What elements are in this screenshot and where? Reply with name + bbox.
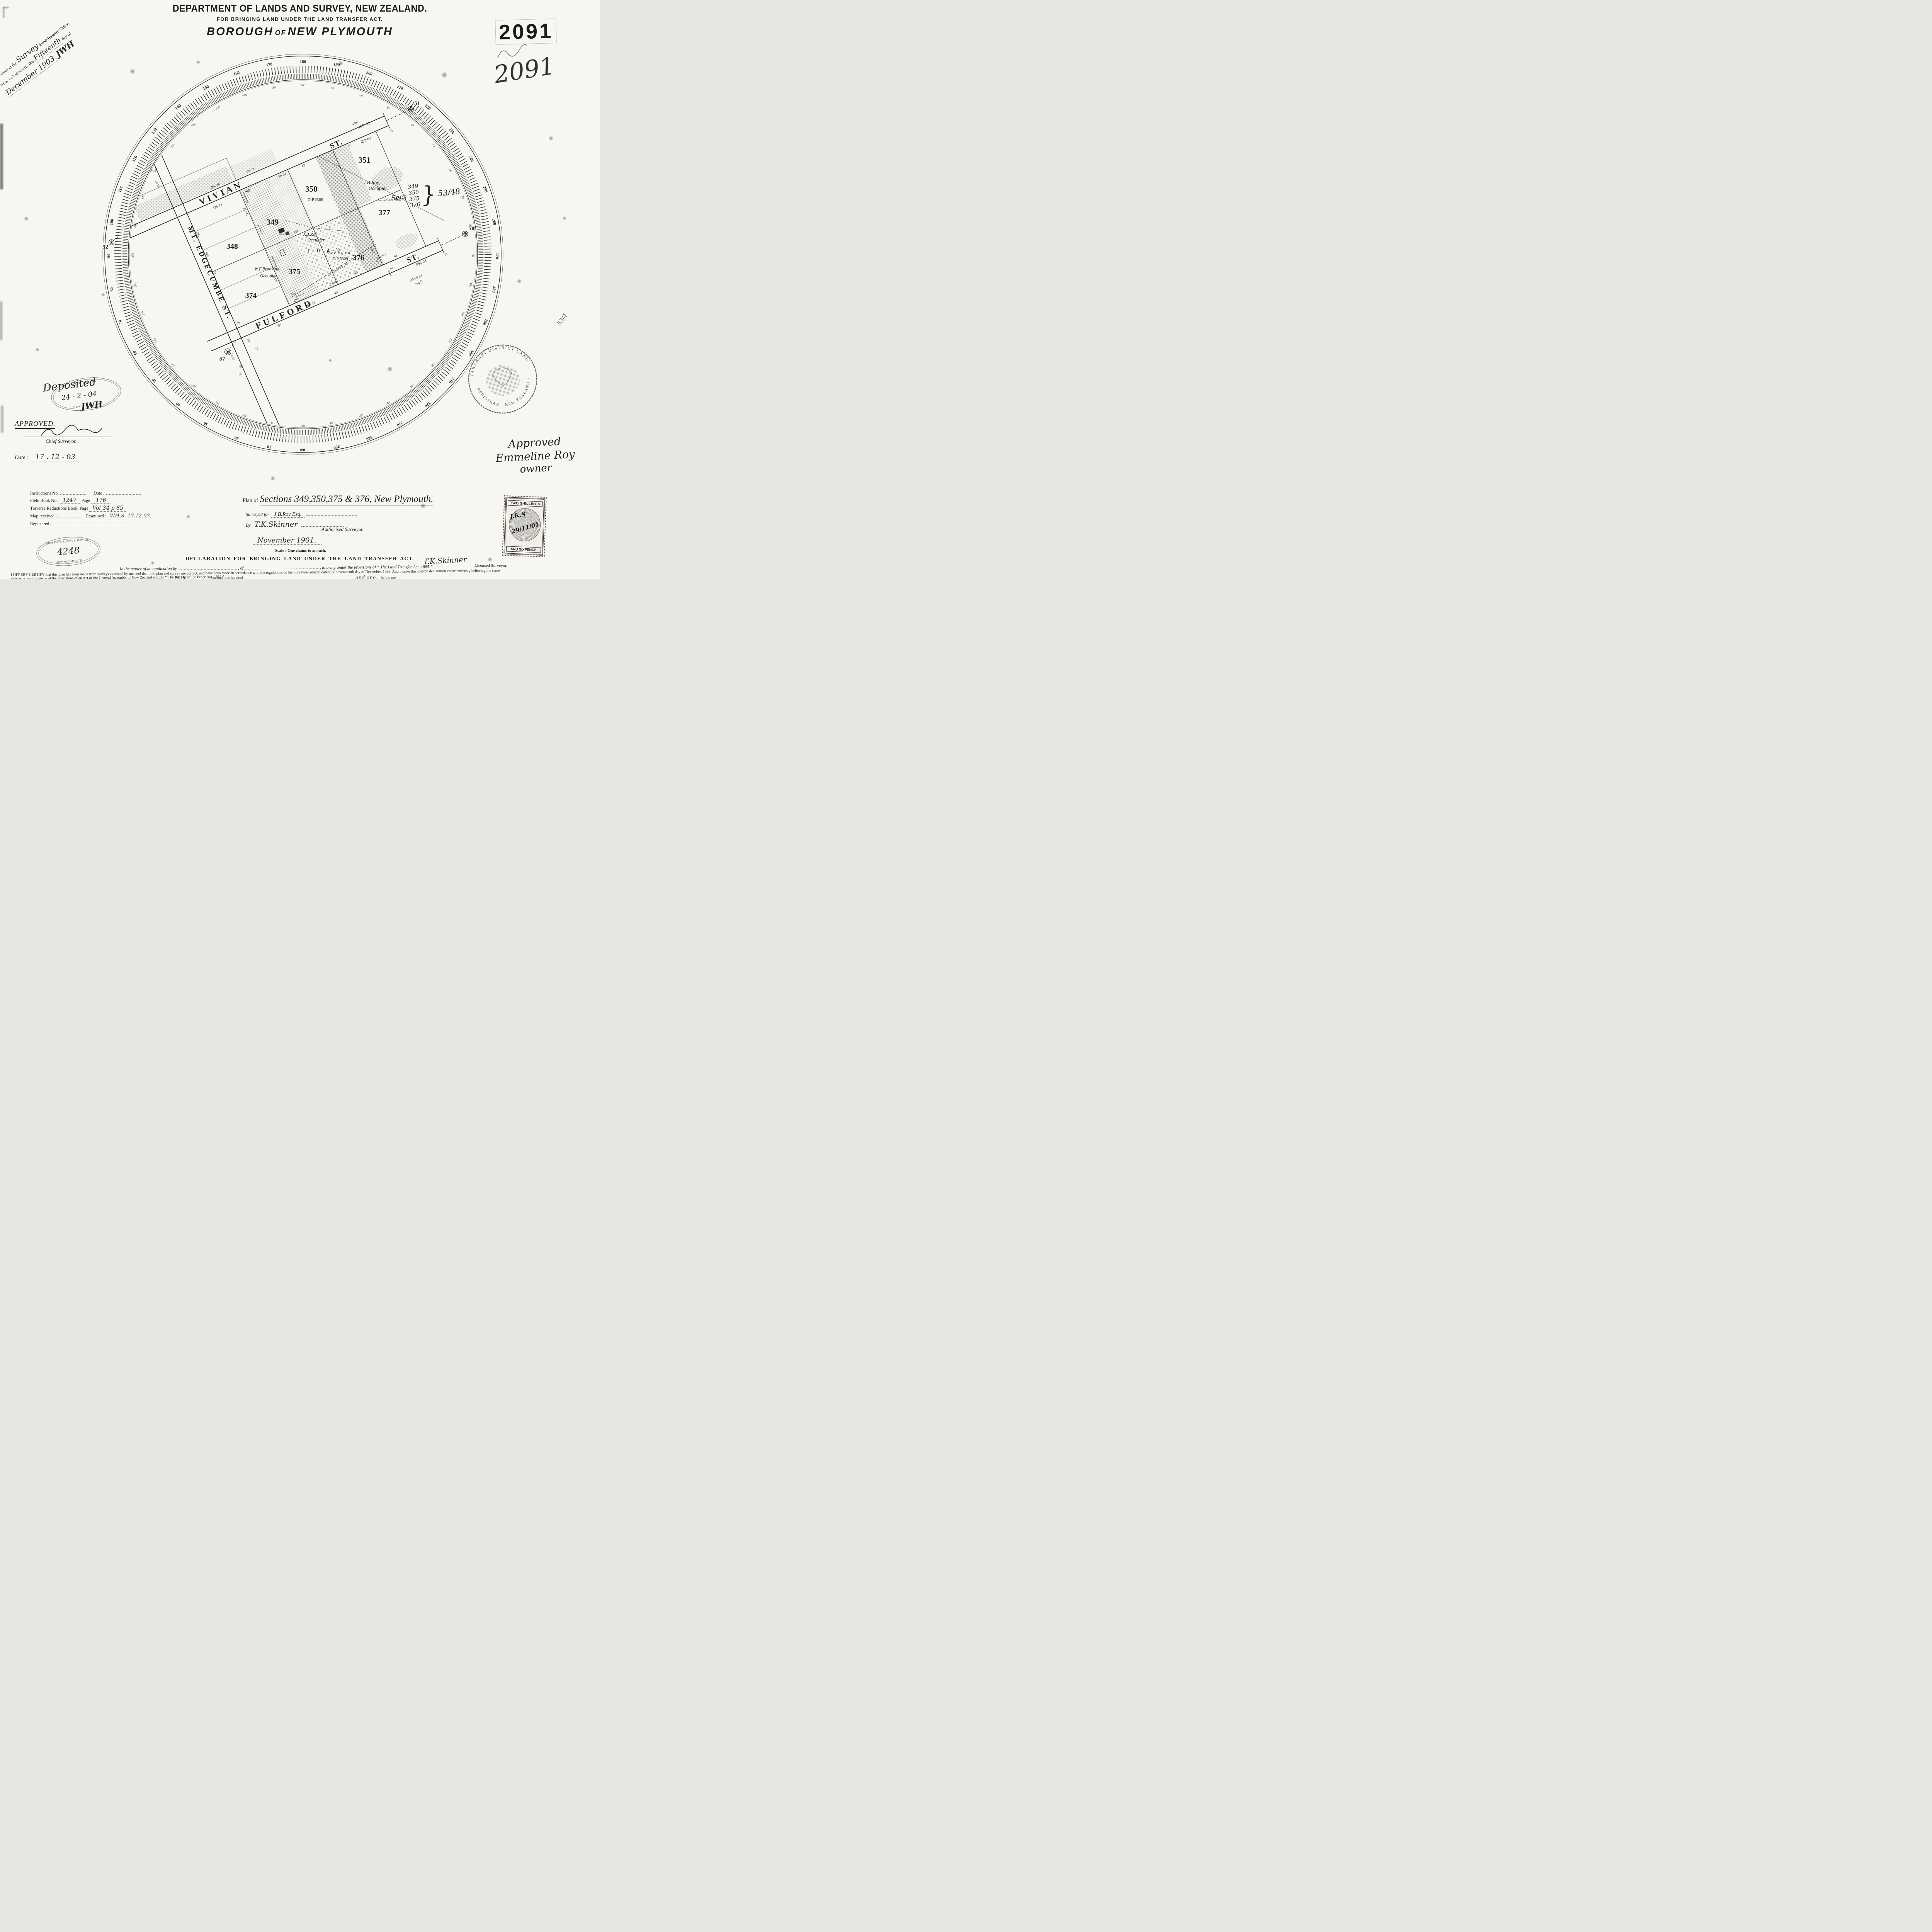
date-label: Date : — [15, 455, 28, 461]
protractor-degree-label: 100 — [109, 218, 115, 226]
inmatter-b: , of — [238, 566, 243, 571]
declaration-signature: T.K.Skinner — [423, 555, 467, 566]
scan-smudge — [228, 149, 277, 180]
deposited-initials: JWH — [80, 399, 103, 412]
occupier-label: Occupier. — [369, 185, 388, 191]
survey-mark-52 — [108, 239, 115, 246]
protractor-degree-label: 260 — [491, 219, 497, 226]
deposited-plan-ref: D.P.6309 — [332, 257, 348, 261]
mark-number-51: 51 — [414, 100, 420, 107]
measurement: 68° — [276, 323, 282, 328]
protractor-degree-label: 130 — [151, 127, 158, 135]
protractor-degree-label: 190 — [271, 421, 276, 425]
protractor-degree-label: 90 — [107, 253, 111, 258]
protractor-degree-label: 220 — [190, 383, 196, 389]
secs-label: Secs — [391, 193, 407, 202]
declaration-frag: before me — [381, 576, 396, 579]
protractor-degree-label: 310 — [170, 143, 175, 149]
protractor-degree-label: 10 — [267, 444, 272, 449]
plan-title: Plan of Sections 349,350,375 & 376, New … — [243, 494, 433, 505]
occupier-name: J.B.Roy, — [364, 179, 380, 185]
surveyed-for-label: Surveyed for — [246, 512, 269, 517]
protractor-degree-label: 230 — [170, 362, 175, 367]
declaration-frag: thousand nine hundred — [209, 576, 243, 579]
paper-speck — [549, 136, 553, 141]
measurement: 25 — [389, 129, 393, 133]
protractor-degree-label: 70 — [118, 319, 124, 325]
paper-speck — [563, 216, 566, 220]
protractor-degree-label: 170 — [266, 62, 273, 68]
page-value: 176 — [91, 497, 111, 504]
protractor-degree-label: 50 — [431, 144, 435, 148]
approval-date-row: Date : 17 . 12 - 03 — [15, 453, 81, 461]
revenue-stamp-bottom: AND SIXPENCE — [506, 546, 541, 553]
survey-mark-58 — [462, 230, 469, 237]
plan-date-value: November 1901. — [252, 536, 322, 545]
measurement: 65 — [393, 254, 398, 258]
protractor-degree-label: 100 — [468, 282, 473, 287]
protractor-degree-label: 60 — [448, 168, 453, 172]
revenue-stamp-top: TWO SHILLINGS — [508, 500, 543, 507]
occupier-name: J.B.Roy — [303, 231, 318, 237]
section-number-374: 374 — [245, 291, 257, 300]
protractor-degree-label: 150 — [202, 84, 210, 92]
protractor-degree-label: 180 — [300, 60, 306, 64]
section-number-350: 350 — [305, 184, 318, 194]
section-number-375: 375 — [289, 267, 300, 276]
protractor-degree-label: 280 — [491, 286, 497, 293]
paper-speck — [186, 515, 190, 519]
date-value: 17 . 12 - 03 — [30, 453, 80, 461]
received-note: Received at the Survey Land Transfer Off… — [0, 0, 111, 97]
measurement: 126·72 — [212, 202, 223, 210]
protractor-degree-label: 140 — [174, 103, 182, 111]
mark-number-52: 52 — [102, 244, 108, 250]
occupier-name: W.F.Brooking. — [254, 266, 281, 272]
surveyed-for-row: Surveyed for J.B.Roy Esq. — [246, 511, 357, 518]
protractor-degree-label: 210 — [215, 400, 221, 405]
protractor-degree-label: 270 — [495, 253, 499, 259]
protractor-degree-label: 20 — [359, 93, 363, 97]
section-number-377: 377 — [379, 209, 390, 217]
borough-title-word: BOROUGH — [207, 26, 273, 38]
protractor-degree-label: 240 — [467, 155, 474, 163]
fieldbook-label: Field Book No. — [30, 498, 58, 503]
plan-date: November 1901. — [252, 536, 322, 544]
by-label: By — [246, 522, 251, 528]
measurement: 20 — [238, 372, 242, 376]
section-number-351: 351 — [358, 155, 371, 165]
protractor-degree-label: 80 — [109, 287, 115, 292]
protractor-degree-label: 320 — [190, 122, 196, 128]
declaration-heading: DECLARATION FOR BRINGING LAND UNDER THE … — [0, 556, 600, 562]
protractor-degree-label: 350 — [333, 444, 340, 450]
revenue-stamp: TWO SHILLINGS J.K.S 29/11/01 AND SIXPENC… — [503, 497, 545, 555]
street-label-fulford: FULFORD — [254, 298, 315, 331]
brace: } — [420, 180, 437, 208]
occupier-label: Occupier. — [308, 237, 325, 243]
page-edge-smudge — [0, 301, 2, 340]
protractor-degree-label: 350 — [271, 86, 276, 90]
traverse-value: Vol 34 p 85 — [89, 505, 126, 512]
protractor-degree-label: 320 — [423, 401, 432, 408]
corner-mark — [3, 7, 9, 8]
inmatter-a: In the matter of an application by — [120, 566, 177, 571]
land-registrar-stamp: TARANAKI DISTRICT LAND REGISTRAR · NEW Z… — [463, 339, 543, 420]
declaration-frag: and one, — [355, 575, 378, 579]
protractor-degree-label: 140 — [410, 383, 415, 389]
secs-number: 376 — [410, 202, 420, 209]
protractor-degree-label: 120 — [131, 155, 139, 163]
measurement: 51·71 — [230, 353, 236, 361]
protractor-degree-label: 70 — [461, 195, 465, 199]
section-number-349: 349 — [267, 217, 279, 226]
paper-speck — [270, 476, 275, 481]
paper-speck — [517, 279, 522, 284]
measurement: 25 — [444, 252, 448, 257]
protractor-degree-label: 10 — [331, 86, 334, 90]
licensed-surveyor-label: Licensed Surveyor. — [474, 563, 507, 568]
protractor-degree-label: 30 — [386, 105, 390, 110]
vegetation-shading — [393, 230, 420, 252]
file-reference: 53/48 — [437, 187, 461, 198]
examined-label: Examined : — [86, 514, 107, 519]
instructions-label: Instructions No. — [30, 491, 59, 496]
date-label: Date : — [94, 491, 105, 496]
street-grid: VIVIAN ST. FULFORD ST. MT. EDGECUMBE ST.… — [101, 53, 505, 456]
plan-title-text: Sections 349,350,375 & 376, New Plymouth… — [260, 494, 433, 505]
edge-file-note: 53/4 — [556, 312, 569, 327]
orchard-label: Orchard — [327, 251, 352, 255]
measurement: 25 — [254, 347, 259, 351]
protractor-degree-label: 270 — [131, 253, 134, 258]
protractor-degree-label: 250 — [141, 311, 146, 316]
protractor-degree-label: 260 — [133, 282, 138, 287]
paper-speck — [24, 216, 29, 221]
map-received-label: Map received : — [30, 514, 57, 519]
protractor-degree-label: 210 — [396, 84, 404, 92]
protractor-degree-label: 110 — [117, 185, 124, 193]
measurement: 65 — [247, 338, 251, 342]
page-edge-smudge — [1, 406, 3, 433]
protractor-degree-label: 170 — [330, 421, 335, 425]
protractor-degree-label: 310 — [447, 376, 455, 384]
traverse-label: Traverse Reductions Book, Page — [30, 506, 88, 511]
residence-label: Residence — [279, 233, 290, 236]
page-edge-smudge — [0, 124, 3, 189]
authorised-surveyor-label: Authorised Surveyor. — [321, 526, 364, 532]
page-label: Page — [82, 498, 90, 503]
measurement: total) — [415, 279, 423, 286]
borough-title-of: OF — [275, 29, 286, 37]
fieldbook-value: 1247 — [59, 497, 80, 504]
measurement: 43' — [333, 290, 339, 295]
surveyed-for-value: J.B.Roy Esq. — [271, 512, 305, 518]
protractor-degree-label: 360 — [301, 83, 305, 87]
survey-map: 1801902002102202302402502602702802903003… — [101, 53, 505, 456]
protractor-degree-label: 20 — [234, 435, 240, 441]
declaration-frag: 20th — [175, 575, 185, 579]
protractor-degree-label: 180 — [301, 424, 305, 427]
protractor-degree-label: 290 — [482, 318, 488, 326]
measurement: 51·71 — [155, 180, 161, 188]
protractor-degree-label: 160 — [233, 70, 241, 77]
mark-number-58: 58 — [469, 226, 474, 232]
section-number-376: 376 — [353, 253, 364, 262]
borough-title-place: NEW PLYMOUTH — [288, 26, 393, 38]
surveyor-signature: T.K.Skinner — [252, 520, 300, 529]
protractor-degree-label: 340 — [242, 93, 247, 98]
scanned-survey-plan: DEPARTMENT OF LANDS AND SURVEY, NEW ZEAL… — [0, 0, 600, 579]
measurement: total — [351, 120, 359, 126]
protractor-degree-label: 200 — [366, 70, 373, 77]
examined-value: WH.S. 17.12.03. — [107, 513, 154, 519]
scale-note: Scale : One chains to an inch. — [275, 549, 326, 553]
street-label-edgecumbe: MT. EDGECUMBE ST. — [186, 225, 234, 321]
record-fields: Instructions No. Date : Field Book No. 1… — [30, 490, 154, 528]
protractor-degree-label: 190 — [333, 62, 340, 68]
protractor-degree-label: 40 — [410, 122, 415, 127]
protractor-degree-label: 230 — [448, 127, 456, 135]
chief-surveyor-label: Chief Surveyor. — [46, 438, 77, 444]
registered-label: Registered : — [30, 522, 51, 526]
protractor-degree-label: 250 — [482, 185, 488, 193]
block-numeral: IV — [390, 267, 394, 270]
protractor-degree-label: 110 — [461, 311, 465, 316]
protractor-degree-label: 150 — [385, 400, 391, 405]
received-text: this — [27, 59, 35, 66]
protractor-degree-label: 330 — [396, 420, 404, 427]
plan-of-label: Plan of — [243, 498, 258, 503]
plan-number-stamp: 2091 — [495, 19, 557, 45]
paper-speck — [36, 348, 39, 352]
mark-number-57: 57 — [219, 356, 226, 362]
protractor-degree-label: 90 — [471, 254, 475, 257]
owner-approval-note: Approved Emmeline Roy owner — [482, 433, 588, 478]
occupier-label: Occupier. — [260, 273, 277, 278]
measurement: 20 — [236, 321, 241, 325]
tree-label: Totara — [387, 270, 392, 277]
protractor-degree-label: 330 — [215, 105, 221, 111]
protractor-degree-label: 360 — [299, 447, 306, 452]
section-number-348: 348 — [226, 242, 238, 251]
protractor-degree-label: 220 — [424, 103, 432, 111]
protractor-degree-label: 60 — [132, 350, 138, 356]
survey-office-stamp: DISTRICT SURVEY OFFICE 4248 NEW PLYMOUTH — [34, 534, 102, 570]
protractor-degree-label: 130 — [430, 362, 436, 367]
measurement: (1546·63) — [357, 121, 371, 129]
deposited-plan-ref: D.P.6309 — [308, 197, 323, 202]
